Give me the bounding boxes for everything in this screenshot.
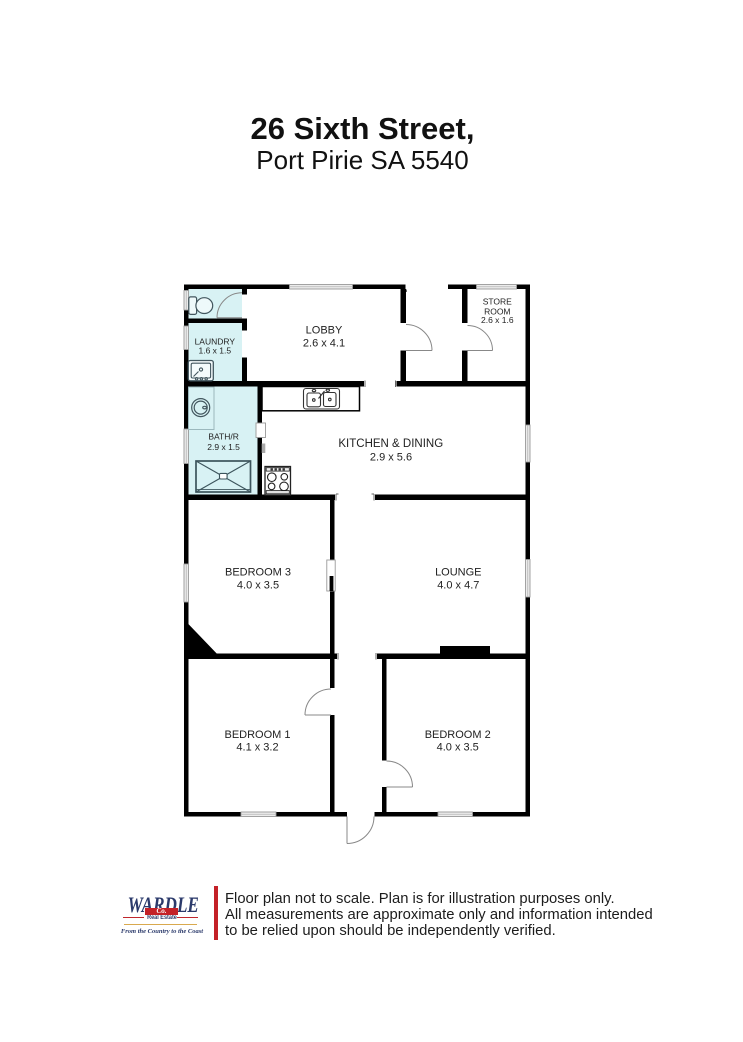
svg-text:2.6 x 1.6: 2.6 x 1.6 — [481, 315, 514, 325]
svg-text:KITCHEN & DINING: KITCHEN & DINING — [338, 438, 443, 450]
svg-text:LOUNGE: LOUNGE — [435, 567, 481, 579]
svg-text:1.6 x 1.5: 1.6 x 1.5 — [198, 346, 231, 356]
svg-text:4.1 x 3.2: 4.1 x 3.2 — [236, 741, 278, 753]
svg-text:4.0 x 3.5: 4.0 x 3.5 — [237, 580, 279, 592]
svg-text:4.0 x 4.7: 4.0 x 4.7 — [437, 580, 479, 592]
svg-text:STORE: STORE — [483, 297, 512, 307]
svg-text:2.6 x 4.1: 2.6 x 4.1 — [303, 337, 345, 349]
svg-text:LOBBY: LOBBY — [306, 324, 343, 336]
svg-text:2.9 x 5.6: 2.9 x 5.6 — [370, 452, 412, 464]
svg-text:BEDROOM 2: BEDROOM 2 — [425, 729, 491, 741]
svg-text:4.0 x 3.5: 4.0 x 3.5 — [437, 741, 479, 753]
svg-text:BEDROOM 1: BEDROOM 1 — [224, 729, 290, 741]
svg-text:BEDROOM 3: BEDROOM 3 — [225, 567, 291, 579]
svg-text:2.9 x 1.5: 2.9 x 1.5 — [207, 442, 240, 452]
svg-text:BATH/R: BATH/R — [208, 432, 239, 442]
